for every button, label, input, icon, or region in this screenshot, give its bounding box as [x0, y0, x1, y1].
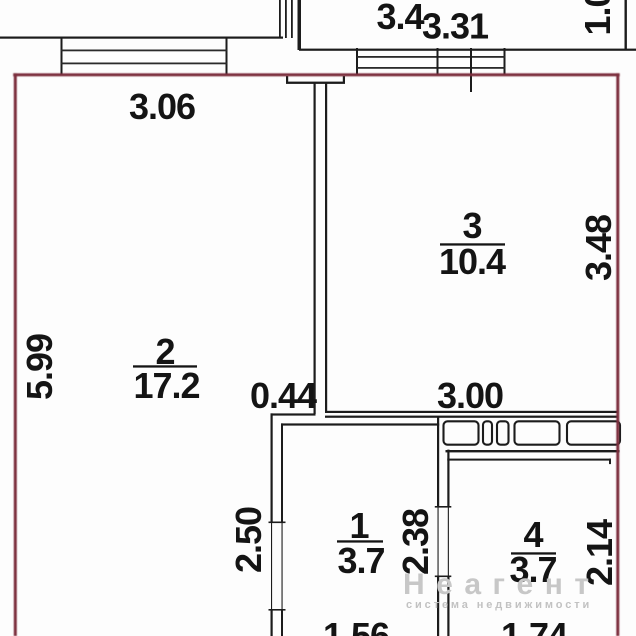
svg-text:3.00: 3.00 [437, 375, 503, 416]
svg-text:система недвижимости: система недвижимости [406, 599, 592, 611]
svg-text:1.74: 1.74 [501, 615, 568, 636]
svg-text:0.44: 0.44 [250, 375, 317, 416]
svg-text:1.0: 1.0 [577, 0, 618, 36]
svg-text:10.4: 10.4 [439, 241, 506, 282]
svg-text:3: 3 [462, 205, 481, 246]
svg-text:3.06: 3.06 [129, 86, 195, 127]
svg-text:17.2: 17.2 [133, 365, 199, 406]
svg-text:1.56: 1.56 [323, 615, 389, 636]
svg-text:2.50: 2.50 [228, 507, 269, 573]
svg-text:5.99: 5.99 [19, 334, 60, 400]
svg-text:3.31: 3.31 [422, 6, 489, 47]
svg-text:2.38: 2.38 [395, 509, 436, 575]
svg-text:3.4: 3.4 [376, 0, 424, 37]
svg-text:3.7: 3.7 [337, 540, 384, 581]
svg-text:3.48: 3.48 [578, 215, 619, 281]
svg-text:Неагент: Неагент [403, 568, 601, 601]
